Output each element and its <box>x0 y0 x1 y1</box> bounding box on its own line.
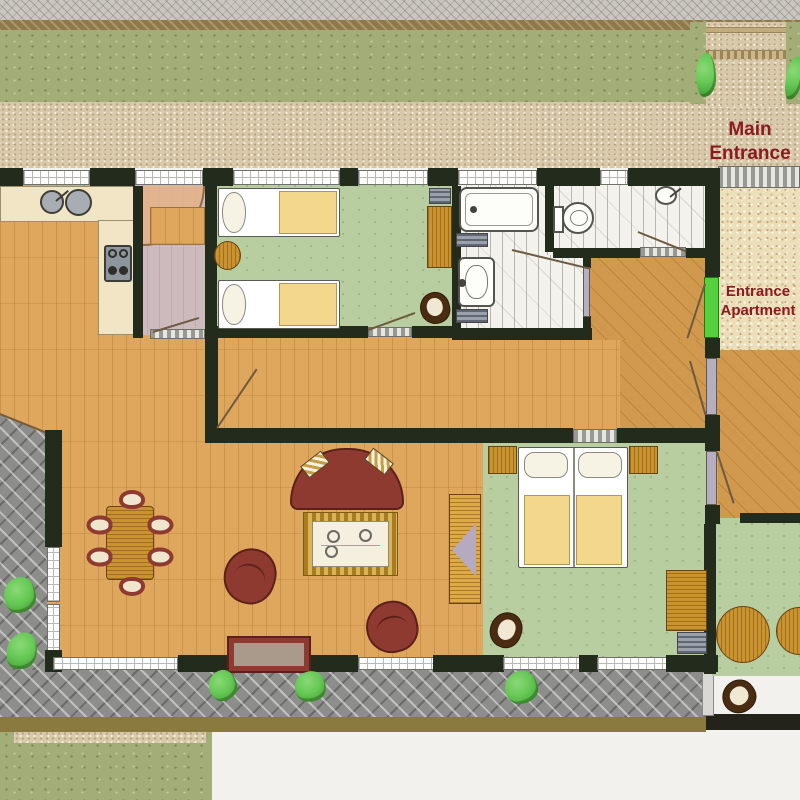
pillow <box>524 452 568 478</box>
stove-burner <box>108 266 117 275</box>
wall-green-room-top <box>740 513 800 523</box>
twin-side-table <box>214 241 241 270</box>
wall <box>537 168 600 186</box>
dining-chair <box>148 548 174 567</box>
wall-right-outer-5 <box>705 505 720 524</box>
window-twin-bedroom-2 <box>358 170 428 185</box>
wall-bottom-f <box>666 655 718 672</box>
window-twin-bedroom <box>233 170 340 185</box>
window-master-1 <box>503 657 580 670</box>
twin-bed-1 <box>218 188 340 237</box>
hall-right-floor <box>620 340 718 430</box>
wall <box>90 168 135 186</box>
twin-bed-2 <box>218 280 340 329</box>
main-entrance-line1: Main <box>696 118 800 142</box>
wall-wc-bottom <box>553 248 640 258</box>
door-leaf-neighbor-b <box>706 451 717 505</box>
stove-burner <box>119 249 128 258</box>
wall <box>0 168 23 186</box>
wall <box>203 168 233 186</box>
bed-divider <box>573 448 575 567</box>
front-path <box>0 102 800 168</box>
walkway-line-2 <box>706 50 786 59</box>
double-bed <box>518 447 628 568</box>
wall-right-outer-2 <box>705 252 720 277</box>
bush-walkway-left <box>696 53 716 97</box>
dining-chair <box>148 516 174 535</box>
wall <box>428 168 458 186</box>
stove-burner <box>119 266 128 275</box>
wall-right-outer-4 <box>705 415 720 451</box>
coffee-table <box>312 521 389 567</box>
washbasin <box>458 257 495 307</box>
terrace-fence <box>702 672 714 716</box>
neighbor-round-table <box>716 606 770 663</box>
window-living-bottom-1 <box>53 657 178 670</box>
corridor-floor <box>588 255 705 340</box>
sideboard <box>227 636 311 673</box>
main-entrance-label: Main Entrance <box>696 118 800 166</box>
apartment-entrance-label: Entrance Apartment <box>712 282 800 320</box>
master-dresser <box>677 632 707 654</box>
wall-hall-bedroom-right <box>617 428 718 443</box>
front-lawn <box>0 30 800 103</box>
wall-right-outer-1 <box>705 168 720 252</box>
walkway-line-1 <box>706 27 786 33</box>
table-item <box>359 529 372 542</box>
master-wardrobe <box>666 570 707 631</box>
terrace-plant <box>4 577 36 613</box>
blanket <box>279 283 337 326</box>
pillow <box>578 452 622 478</box>
wall-wc-bottom-stub <box>686 248 706 258</box>
blanket <box>576 495 622 565</box>
twin-wardrobe <box>427 206 452 268</box>
stairwell-entrance-floor <box>718 186 800 352</box>
dining-table <box>106 506 154 580</box>
twin-radiator <box>429 188 451 204</box>
nightstand-left <box>488 446 517 474</box>
wall-twin-bottom-right <box>412 326 460 338</box>
garden-edge-strip <box>0 716 706 732</box>
dining-chair <box>119 577 145 596</box>
wall-right-outer-3 <box>705 338 720 358</box>
neighbor-chair <box>716 673 763 720</box>
window-wc <box>600 170 628 185</box>
bathtub-drain <box>470 206 477 213</box>
wall-hall-bedroom <box>205 428 573 443</box>
glazed-door-hallway <box>135 170 203 185</box>
entrance-walkway <box>706 22 786 107</box>
threshold-master-door <box>573 429 617 443</box>
dark-edge-strip <box>706 714 800 730</box>
floor-plan: Main Entrance Entrance Apartment <box>0 0 800 800</box>
window-living-left-1 <box>47 547 60 602</box>
pillow <box>222 284 246 325</box>
hallway-mat <box>150 207 205 245</box>
wall-hall-vertical <box>205 338 218 430</box>
window-kitchen <box>23 170 90 185</box>
window-bathroom <box>458 170 537 185</box>
window-master-2 <box>597 657 667 670</box>
pillow <box>222 192 246 233</box>
table-item <box>325 545 338 558</box>
wall-bottom-e <box>579 655 598 672</box>
road-gravel <box>0 0 800 22</box>
chair-seat <box>495 617 518 642</box>
towel-radiator-1 <box>456 233 488 247</box>
kitchen-sink-left <box>40 190 64 214</box>
wall-left-outer <box>45 430 62 547</box>
chair-seat <box>425 297 445 319</box>
table-item <box>327 530 340 543</box>
wall <box>340 168 358 186</box>
chair-seat <box>726 683 752 709</box>
window-living-bottom-2 <box>358 657 434 670</box>
towel-radiator-2 <box>456 309 488 323</box>
nightstand-right <box>629 446 658 474</box>
wall-bottom-d <box>433 655 504 672</box>
apartment-entrance-line2: Apartment <box>712 301 800 320</box>
blanket <box>524 495 570 565</box>
basin-faucet <box>458 279 466 287</box>
apartment-entrance-line1: Entrance <box>712 282 800 301</box>
dining-chair <box>87 516 113 535</box>
dining-chair <box>87 548 113 567</box>
dining-chair <box>119 490 145 509</box>
door-leaf-neighbor-a <box>706 358 717 415</box>
main-entrance-line2: Entrance <box>696 142 800 166</box>
stove-burner <box>108 249 117 258</box>
corner-sink <box>655 186 677 205</box>
entrance-step-mat <box>718 166 800 188</box>
bathtub <box>459 187 539 232</box>
wall-bath-bottom <box>452 328 592 340</box>
table-line <box>321 545 380 546</box>
terrace-bottom <box>0 670 706 717</box>
back-path <box>14 731 206 743</box>
blanket <box>279 191 337 234</box>
toilet-bowl <box>562 202 594 234</box>
kitchen-sink-right <box>65 189 92 216</box>
door-leaf-bathroom <box>583 267 590 317</box>
wall-kitchen-hallway <box>133 186 143 338</box>
